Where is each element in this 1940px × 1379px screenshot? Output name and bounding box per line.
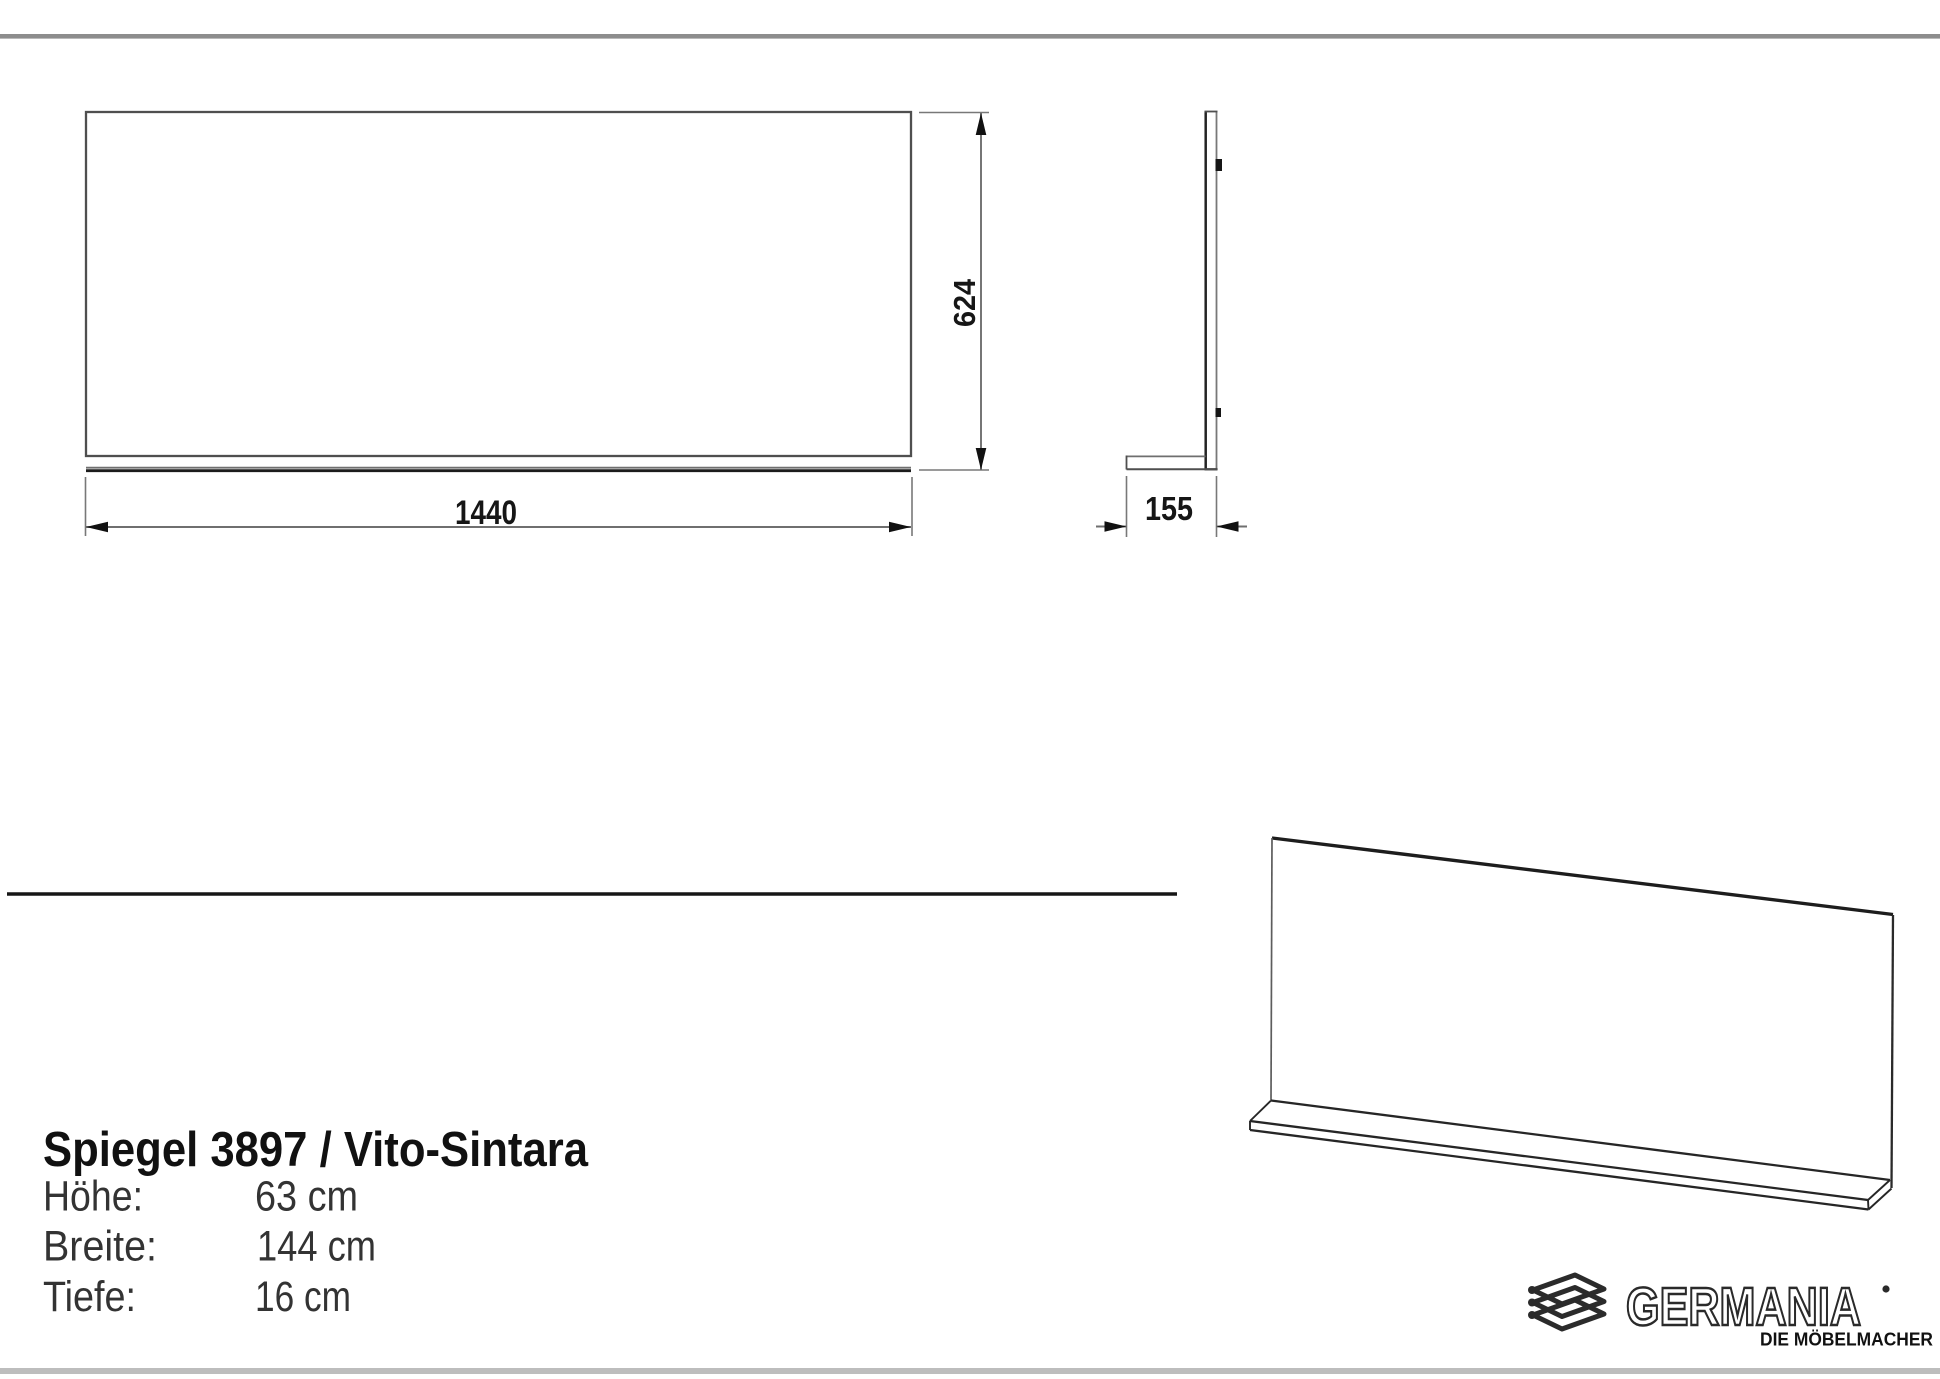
svg-text:GERMANIA: GERMANIA — [1626, 1277, 1861, 1337]
svg-text:Höhe:: Höhe: — [43, 1173, 143, 1221]
svg-text:144 cm: 144 cm — [257, 1223, 376, 1271]
svg-text:DIE MÖBELMACHER: DIE MÖBELMACHER — [1760, 1330, 1933, 1350]
svg-text:16 cm: 16 cm — [255, 1273, 351, 1321]
svg-text:Tiefe:: Tiefe: — [43, 1273, 136, 1321]
svg-text:624: 624 — [947, 278, 982, 327]
svg-text:1440: 1440 — [455, 494, 517, 532]
svg-text:Breite:: Breite: — [43, 1223, 157, 1271]
svg-text:155: 155 — [1145, 490, 1193, 527]
svg-text:Spiegel 3897 / Vito-Sintara: Spiegel 3897 / Vito-Sintara — [43, 1123, 589, 1177]
svg-text:63 cm: 63 cm — [255, 1173, 358, 1221]
